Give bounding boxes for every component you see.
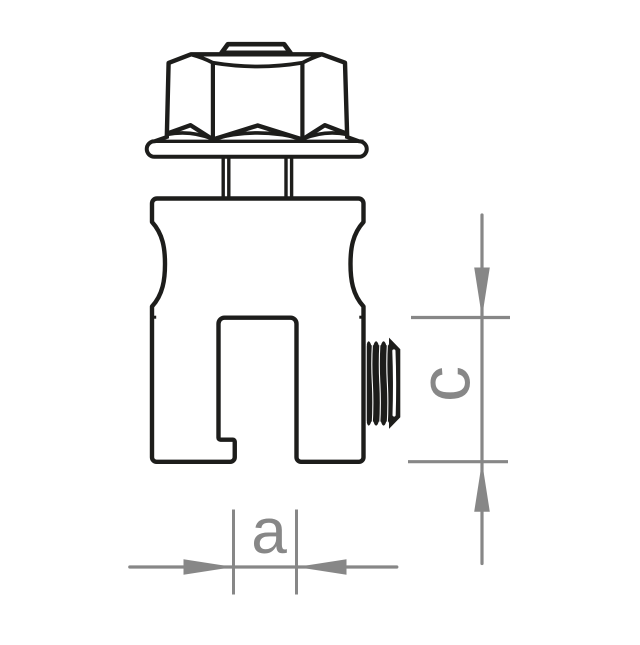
svg-text:c: c <box>406 366 486 402</box>
svg-text:a: a <box>251 495 287 567</box>
